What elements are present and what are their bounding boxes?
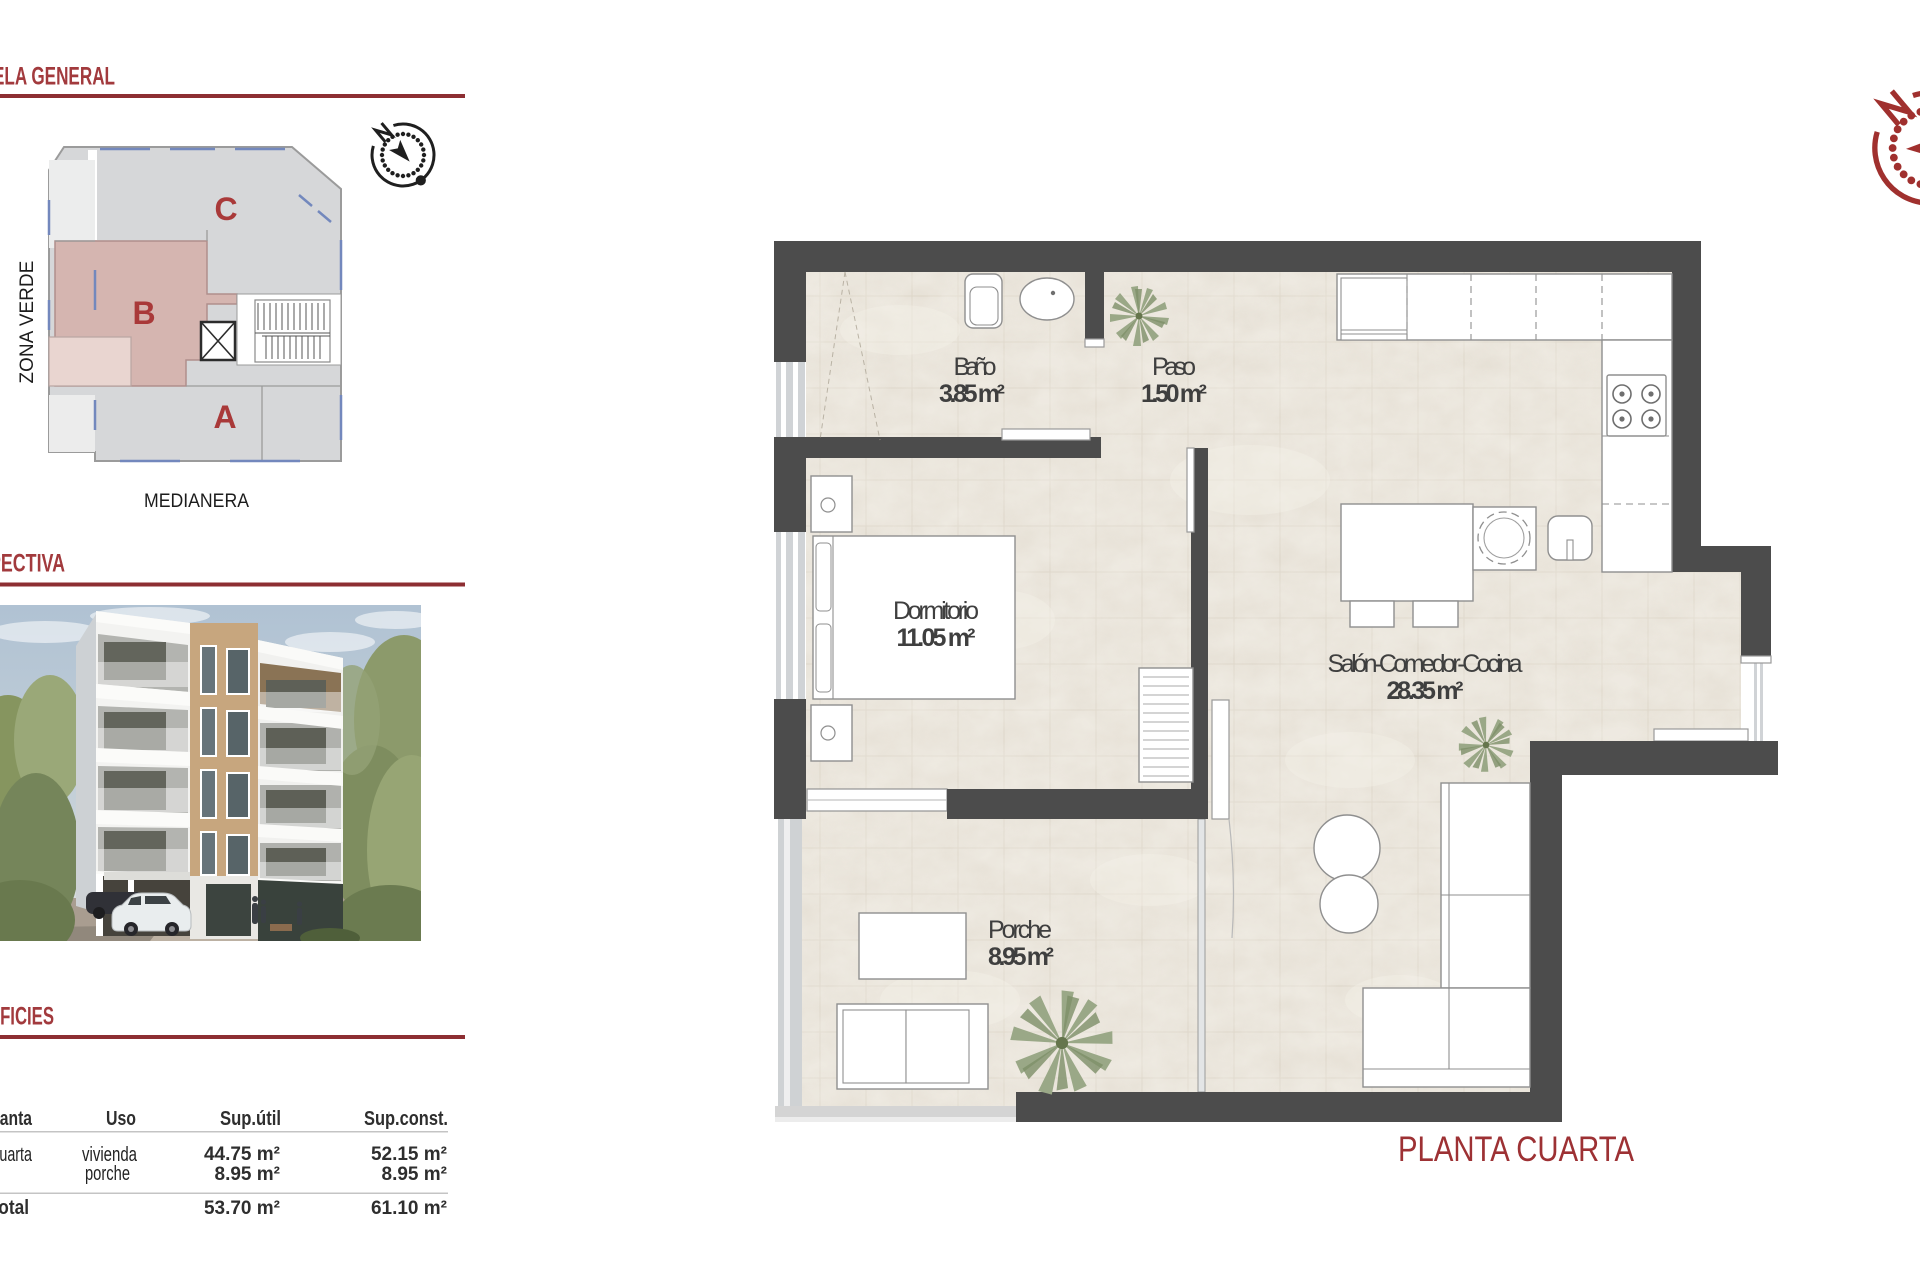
svg-text:8.95 m²: 8.95 m² bbox=[988, 943, 1054, 971]
svg-text:C: C bbox=[214, 191, 237, 227]
svg-text:44.75 m²: 44.75 m² bbox=[204, 1144, 280, 1165]
svg-text:PLANTA CUARTA: PLANTA CUARTA bbox=[1398, 1130, 1635, 1169]
svg-text:1.50 m²: 1.50 m² bbox=[1141, 380, 1207, 408]
svg-text:Salón-Comedor-Cocina: Salón-Comedor-Cocina bbox=[1328, 650, 1523, 678]
svg-text:3.85 m²: 3.85 m² bbox=[939, 380, 1005, 408]
svg-text:8.95 m²: 8.95 m² bbox=[215, 1164, 280, 1185]
svg-text:RFICIES: RFICIES bbox=[0, 1003, 54, 1031]
svg-text:A: A bbox=[213, 399, 236, 435]
svg-text:8.95 m²: 8.95 m² bbox=[382, 1164, 447, 1185]
svg-text:Paso: Paso bbox=[1152, 353, 1196, 381]
svg-text:61.10 m²: 61.10 m² bbox=[371, 1198, 447, 1219]
svg-text:B: B bbox=[132, 295, 155, 331]
svg-text:11.05 m²: 11.05 m² bbox=[897, 624, 976, 652]
svg-text:ELA GENERAL: ELA GENERAL bbox=[0, 63, 115, 91]
svg-text:Baño: Baño bbox=[954, 353, 997, 381]
svg-text:Sup.útil: Sup.útil bbox=[220, 1108, 281, 1130]
svg-text:52.15 m²: 52.15 m² bbox=[371, 1144, 447, 1165]
svg-text:Porche: Porche bbox=[988, 916, 1052, 944]
svg-text:MEDIANERA: MEDIANERA bbox=[144, 491, 249, 512]
svg-text:Cuarta: Cuarta bbox=[0, 1144, 33, 1166]
svg-text:porche: porche bbox=[85, 1163, 130, 1185]
svg-text:Uso: Uso bbox=[106, 1108, 136, 1130]
svg-text:Planta: Planta bbox=[0, 1108, 33, 1130]
svg-text:53.70 m²: 53.70 m² bbox=[204, 1198, 280, 1219]
svg-text:ZONA VERDE: ZONA VERDE bbox=[17, 261, 38, 384]
svg-text:Total: Total bbox=[0, 1197, 29, 1219]
svg-text:PECTIVA: PECTIVA bbox=[0, 550, 65, 578]
svg-text:Dormitorio: Dormitorio bbox=[893, 597, 979, 625]
svg-text:28.35 m²: 28.35 m² bbox=[1387, 677, 1464, 705]
svg-text:Sup.const.: Sup.const. bbox=[364, 1108, 448, 1130]
